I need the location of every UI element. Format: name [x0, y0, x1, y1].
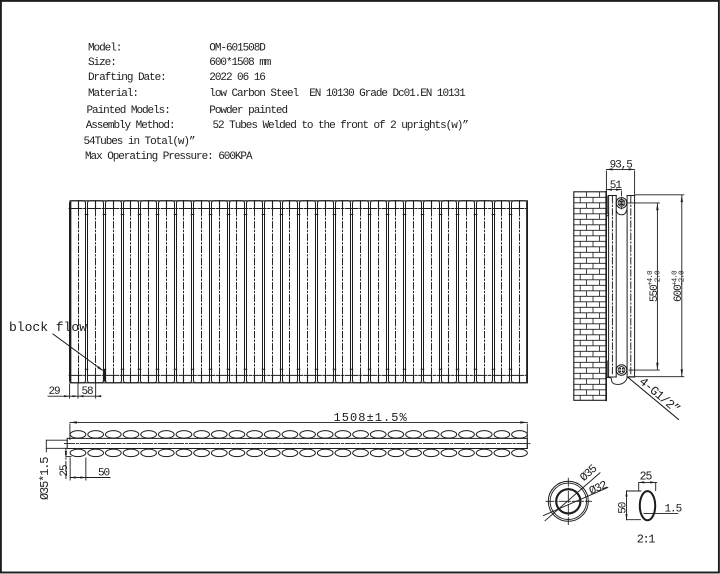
svg-text:29: 29	[49, 386, 61, 398]
svg-text:Ø35*1.5: Ø35*1.5	[38, 457, 52, 500]
svg-text:1.5: 1.5	[665, 503, 682, 515]
svg-text:Painted Models:: Painted Models:	[87, 105, 170, 117]
svg-text:54Tubes in Total(w)”: 54Tubes in Total(w)”	[84, 136, 195, 148]
svg-text:Powder painted: Powder painted	[209, 105, 287, 117]
svg-text:Material:: Material:	[88, 88, 138, 100]
svg-text:600: 600	[673, 285, 685, 302]
svg-text:93,5: 93,5	[610, 160, 633, 172]
svg-text:52 Tubes Welded to the front o: 52 Tubes Welded to the front of 2 uprigh…	[213, 120, 469, 132]
svg-text:Max Operating Pressure: 600KPA: Max Operating Pressure: 600KPA	[85, 151, 253, 163]
svg-text:Model:: Model:	[88, 43, 121, 55]
svg-text:50: 50	[98, 468, 110, 480]
svg-text:25: 25	[640, 470, 653, 483]
svg-text:58: 58	[82, 386, 94, 398]
svg-text:Drafting Date:: Drafting Date:	[88, 72, 166, 84]
svg-text:-2.0: -2.0	[654, 270, 662, 286]
svg-text:-2.0: -2.0	[679, 270, 687, 286]
svg-text:2022 06 16: 2022 06 16	[209, 72, 265, 84]
svg-text:600*1508 mm: 600*1508 mm	[209, 57, 272, 69]
svg-text:25: 25	[59, 465, 71, 477]
svg-text:block flow: block flow	[9, 320, 87, 335]
svg-text:Assembly Method:: Assembly Method:	[86, 120, 175, 132]
svg-text:1508±1.5%: 1508±1.5%	[334, 411, 408, 425]
svg-text:Size:: Size:	[88, 57, 116, 69]
svg-text:550: 550	[649, 285, 661, 302]
svg-text:low Carbon Steel EN 10130 Gra: low Carbon Steel EN 10130 Grade Dc01.EN …	[209, 88, 466, 100]
svg-text:51: 51	[610, 180, 623, 192]
svg-text:OM-601508D: OM-601508D	[209, 43, 266, 55]
svg-text:2:1: 2:1	[637, 533, 655, 547]
svg-text:50: 50	[618, 502, 630, 514]
